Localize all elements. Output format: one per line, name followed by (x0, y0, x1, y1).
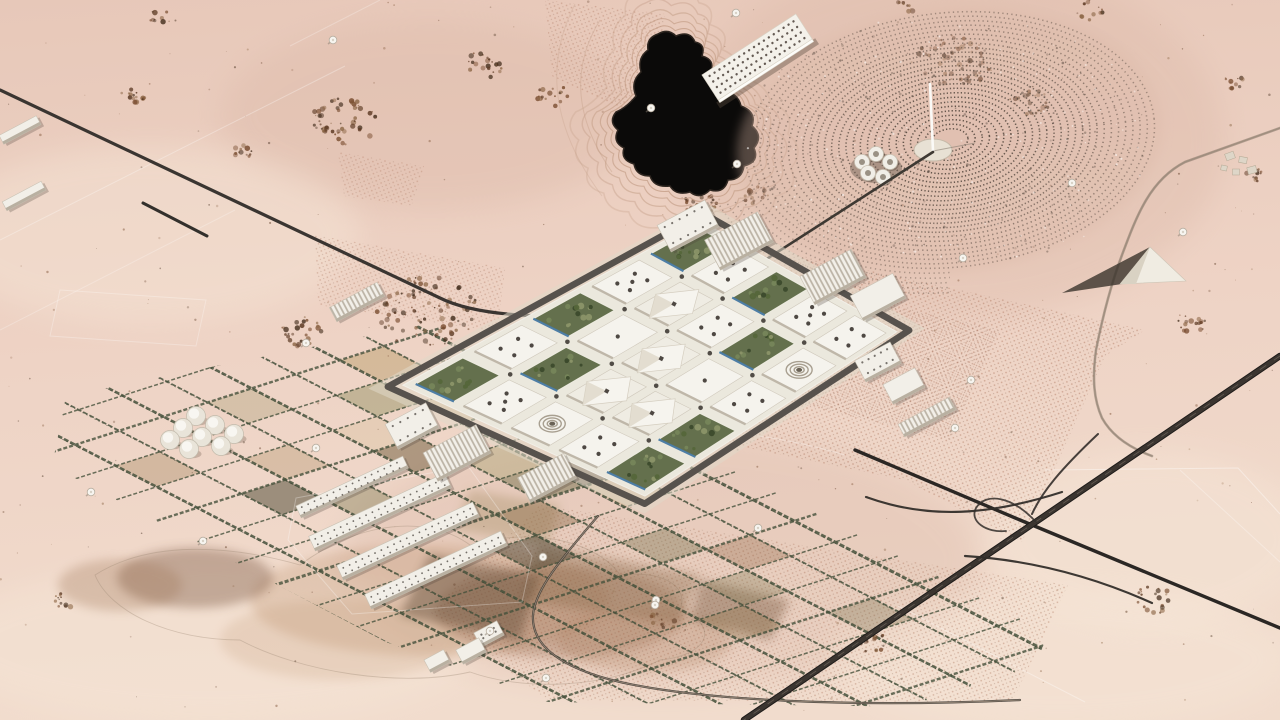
desert-city-scene (0, 0, 1280, 720)
aerial-masterplan-render (0, 0, 1280, 720)
